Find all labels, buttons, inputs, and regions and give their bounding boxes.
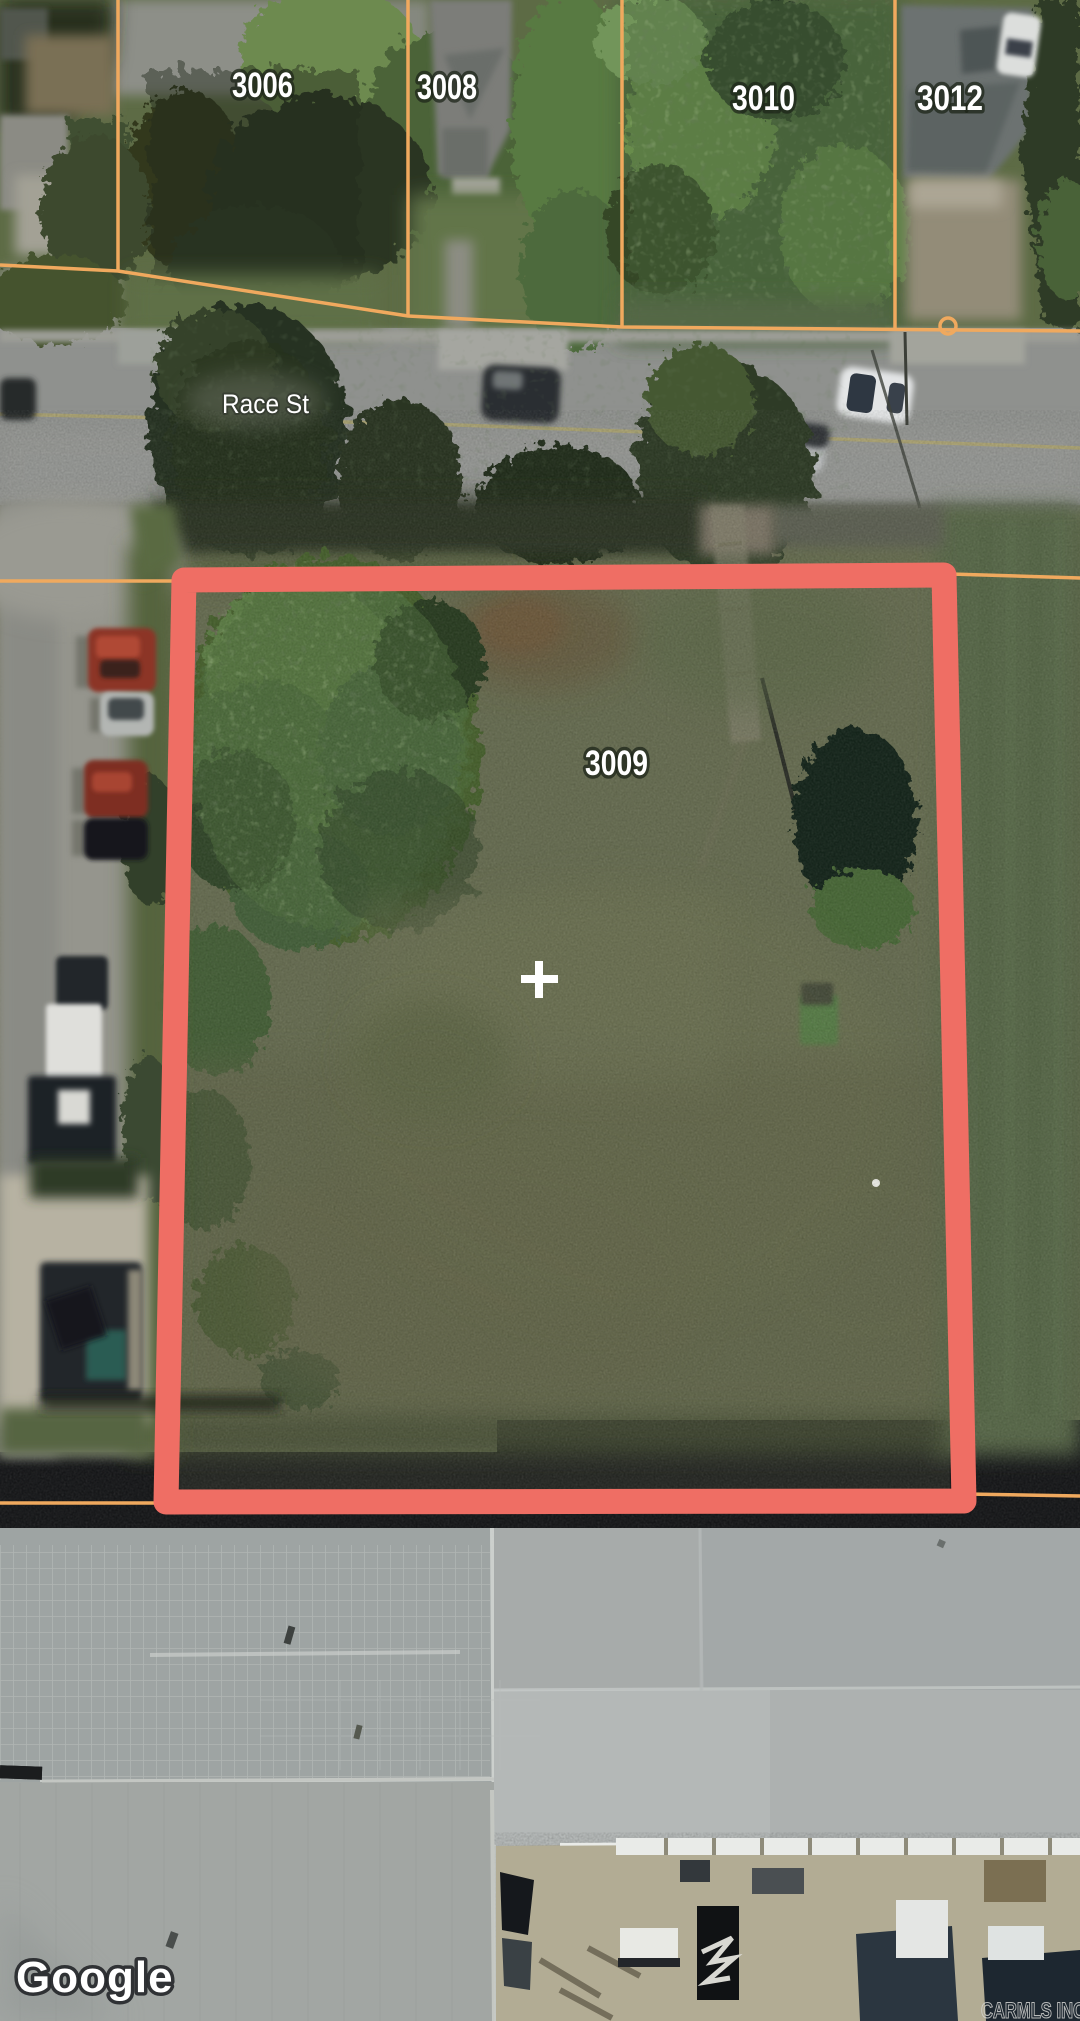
svg-text:3012: 3012 (917, 79, 983, 118)
svg-text:3010: 3010 (732, 79, 795, 118)
svg-text:3006: 3006 (232, 66, 293, 105)
svg-text:Race St: Race St (222, 389, 309, 419)
svg-text:CARMLS INC: CARMLS INC (981, 1998, 1080, 2021)
svg-text:3009: 3009 (585, 744, 648, 783)
svg-text:Google: Google (16, 1953, 174, 2002)
svg-text:3008: 3008 (417, 68, 477, 107)
